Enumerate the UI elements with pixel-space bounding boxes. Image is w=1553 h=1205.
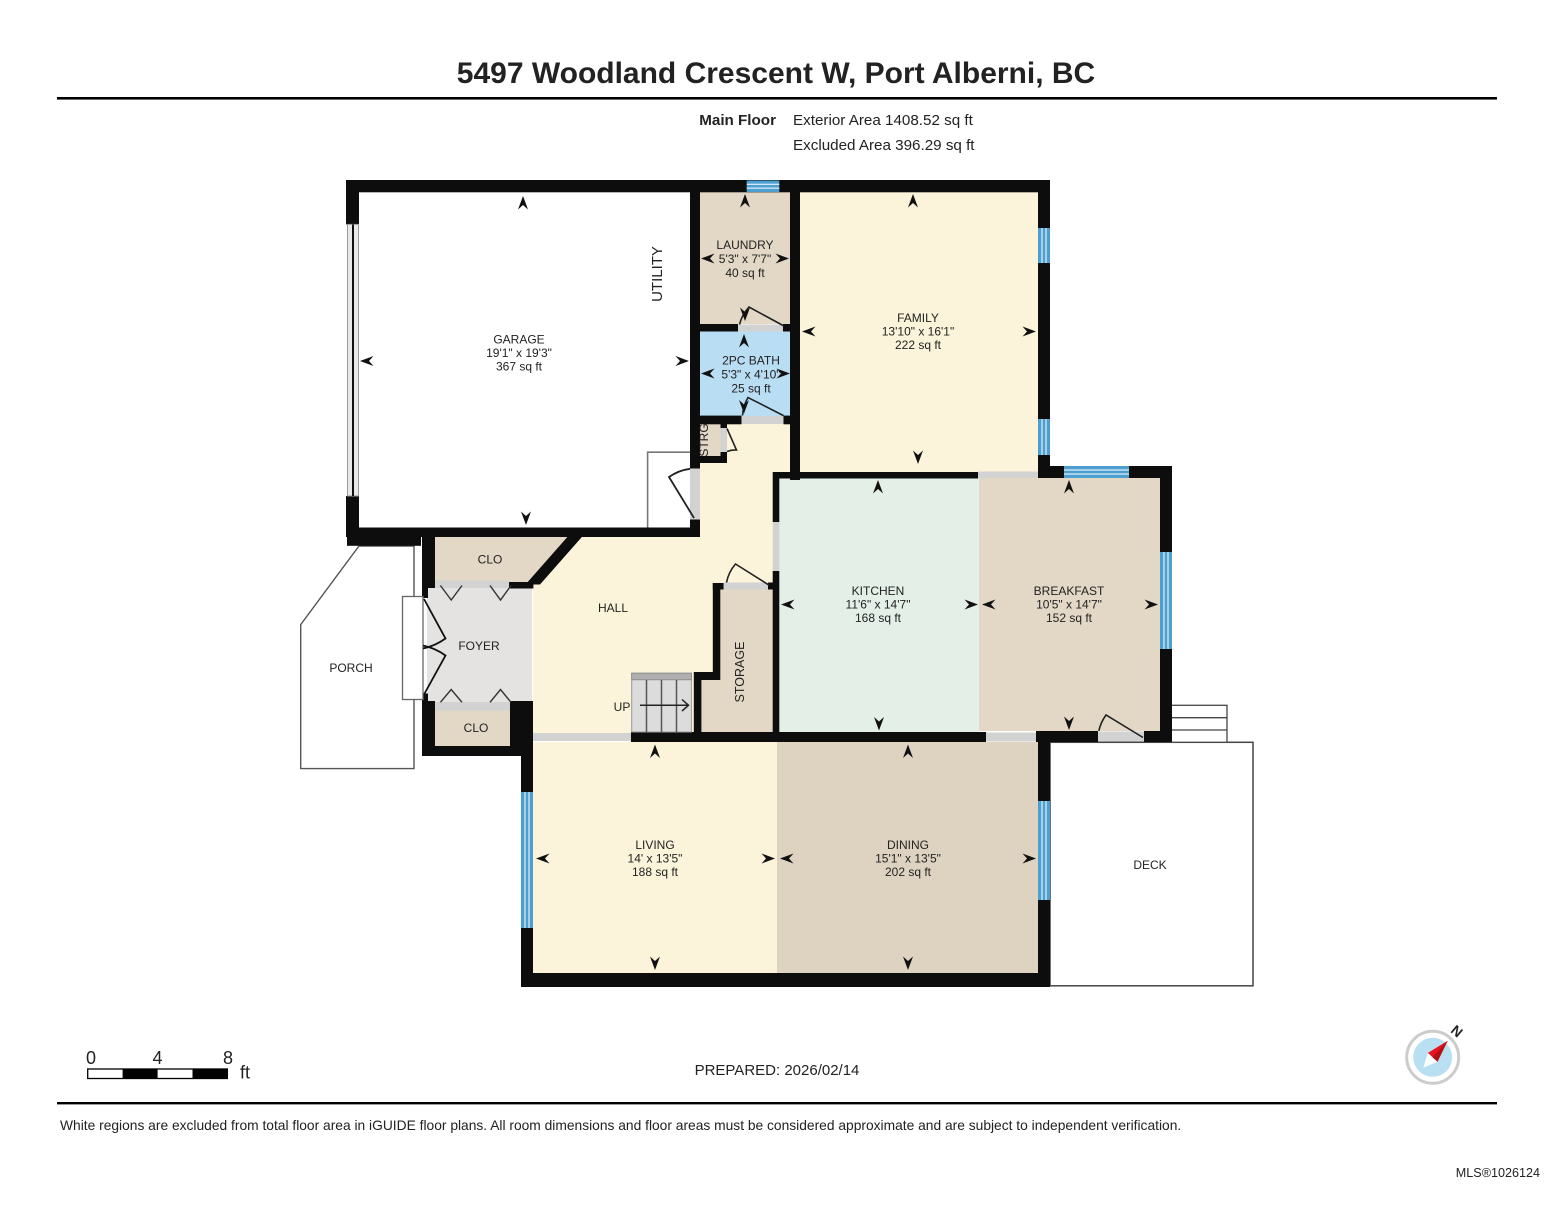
svg-text:White regions are excluded fro: White regions are excluded from total fl… [60, 1118, 1181, 1133]
svg-text:2PC BATH: 2PC BATH [722, 354, 780, 368]
svg-text:MLS®1026124: MLS®1026124 [1456, 1166, 1540, 1180]
svg-text:LAUNDRY: LAUNDRY [716, 238, 773, 252]
svg-text:HALL: HALL [598, 601, 628, 615]
svg-text:4: 4 [152, 1048, 162, 1068]
svg-text:15'1" x 13'5": 15'1" x 13'5" [875, 852, 941, 866]
svg-text:5'3" x 4'10": 5'3" x 4'10" [721, 368, 780, 382]
svg-text:UTILITY: UTILITY [649, 246, 666, 302]
svg-text:14' x 13'5": 14' x 13'5" [628, 852, 683, 866]
svg-text:FAMILY: FAMILY [897, 311, 939, 325]
svg-text:Exterior Area 1408.52 sq ft: Exterior Area 1408.52 sq ft [793, 112, 974, 129]
svg-text:19'1" x 19'3": 19'1" x 19'3" [486, 346, 552, 360]
svg-text:LIVING: LIVING [635, 838, 674, 852]
svg-text:10'5" x 14'7": 10'5" x 14'7" [1036, 598, 1102, 612]
svg-text:367 sq ft: 367 sq ft [496, 360, 543, 374]
svg-text:13'10" x 16'1": 13'10" x 16'1" [882, 325, 955, 339]
svg-text:8: 8 [223, 1048, 233, 1068]
svg-text:CLO: CLO [464, 721, 489, 735]
svg-text:5'3" x 7'7": 5'3" x 7'7" [719, 252, 771, 266]
svg-text:168 sq ft: 168 sq ft [855, 611, 902, 625]
svg-text:DECK: DECK [1133, 858, 1166, 872]
svg-text:Excluded Area 396.29 sq ft: Excluded Area 396.29 sq ft [793, 137, 975, 154]
svg-text:ft: ft [240, 1063, 250, 1083]
svg-text:KITCHEN: KITCHEN [852, 584, 905, 598]
svg-text:FOYER: FOYER [458, 639, 500, 653]
svg-text:202 sq ft: 202 sq ft [885, 865, 932, 879]
svg-text:STORAGE: STORAGE [733, 642, 747, 703]
svg-text:5497 Woodland Crescent W, Port: 5497 Woodland Crescent W, Port Alberni, … [457, 57, 1095, 90]
svg-text:25 sq ft: 25 sq ft [731, 382, 771, 396]
svg-text:40 sq ft: 40 sq ft [725, 266, 765, 280]
svg-text:PORCH: PORCH [329, 661, 372, 675]
svg-text:UP: UP [614, 700, 631, 714]
svg-text:152 sq ft: 152 sq ft [1046, 611, 1093, 625]
svg-text:0: 0 [86, 1048, 96, 1068]
svg-text:GARAGE: GARAGE [493, 333, 544, 347]
svg-text:11'6" x 14'7": 11'6" x 14'7" [846, 598, 911, 612]
svg-text:Main Floor: Main Floor [699, 112, 776, 129]
svg-text:STRG: STRG [697, 423, 711, 456]
svg-text:BREAKFAST: BREAKFAST [1034, 584, 1105, 598]
svg-text:PREPARED: 2026/02/14: PREPARED: 2026/02/14 [695, 1062, 860, 1079]
svg-text:DINING: DINING [887, 838, 929, 852]
svg-text:CLO: CLO [478, 553, 503, 567]
svg-text:222 sq ft: 222 sq ft [895, 338, 942, 352]
svg-text:188 sq ft: 188 sq ft [632, 865, 679, 879]
